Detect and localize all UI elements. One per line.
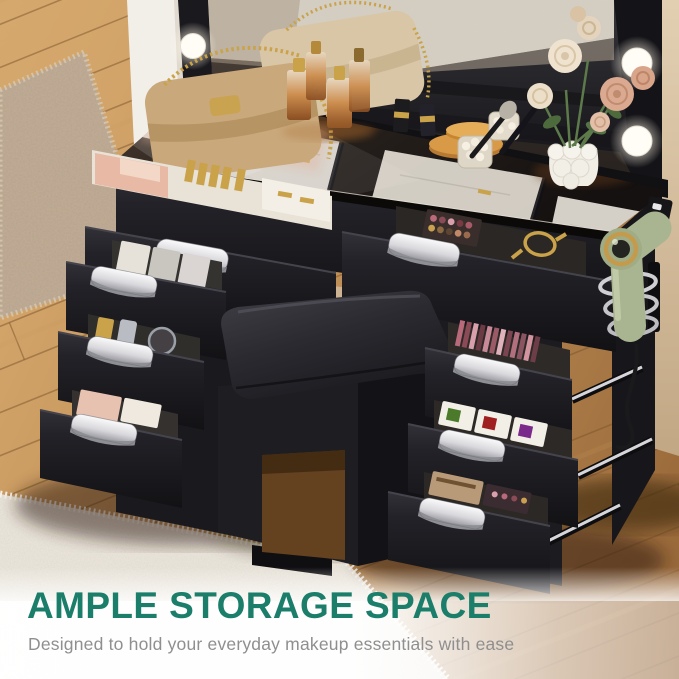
led-bulb [169, 22, 217, 70]
vanity-scene [0, 0, 679, 679]
product-image: AMPLE STORAGE SPACE Designed to hold you… [0, 0, 679, 679]
subheadline: Designed to hold your everyday makeup es… [28, 634, 514, 655]
headline: AMPLE STORAGE SPACE [27, 585, 492, 627]
led-bulb [610, 114, 664, 168]
flower-vase [548, 141, 598, 189]
